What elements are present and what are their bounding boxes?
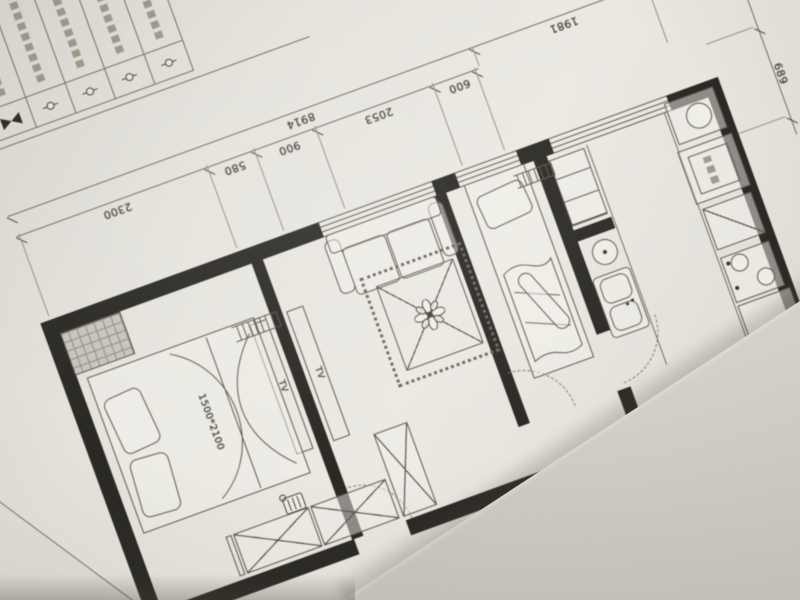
dim-689: 689	[768, 55, 793, 93]
dim-ext	[645, 0, 668, 43]
bottom-edge-shadow	[0, 574, 355, 600]
photo-of-floor-plan: TV TV 1500*2100	[0, 0, 800, 600]
dim-ext	[18, 233, 49, 316]
dim-ext	[314, 125, 345, 208]
dim-line-side	[738, 0, 797, 134]
dim-ext	[738, 116, 785, 134]
dim-ext	[472, 47, 480, 66]
dim-tick	[7, 217, 18, 223]
dim-ext	[706, 27, 753, 45]
legend-table	[0, 0, 194, 156]
window-kitchen	[549, 96, 672, 154]
